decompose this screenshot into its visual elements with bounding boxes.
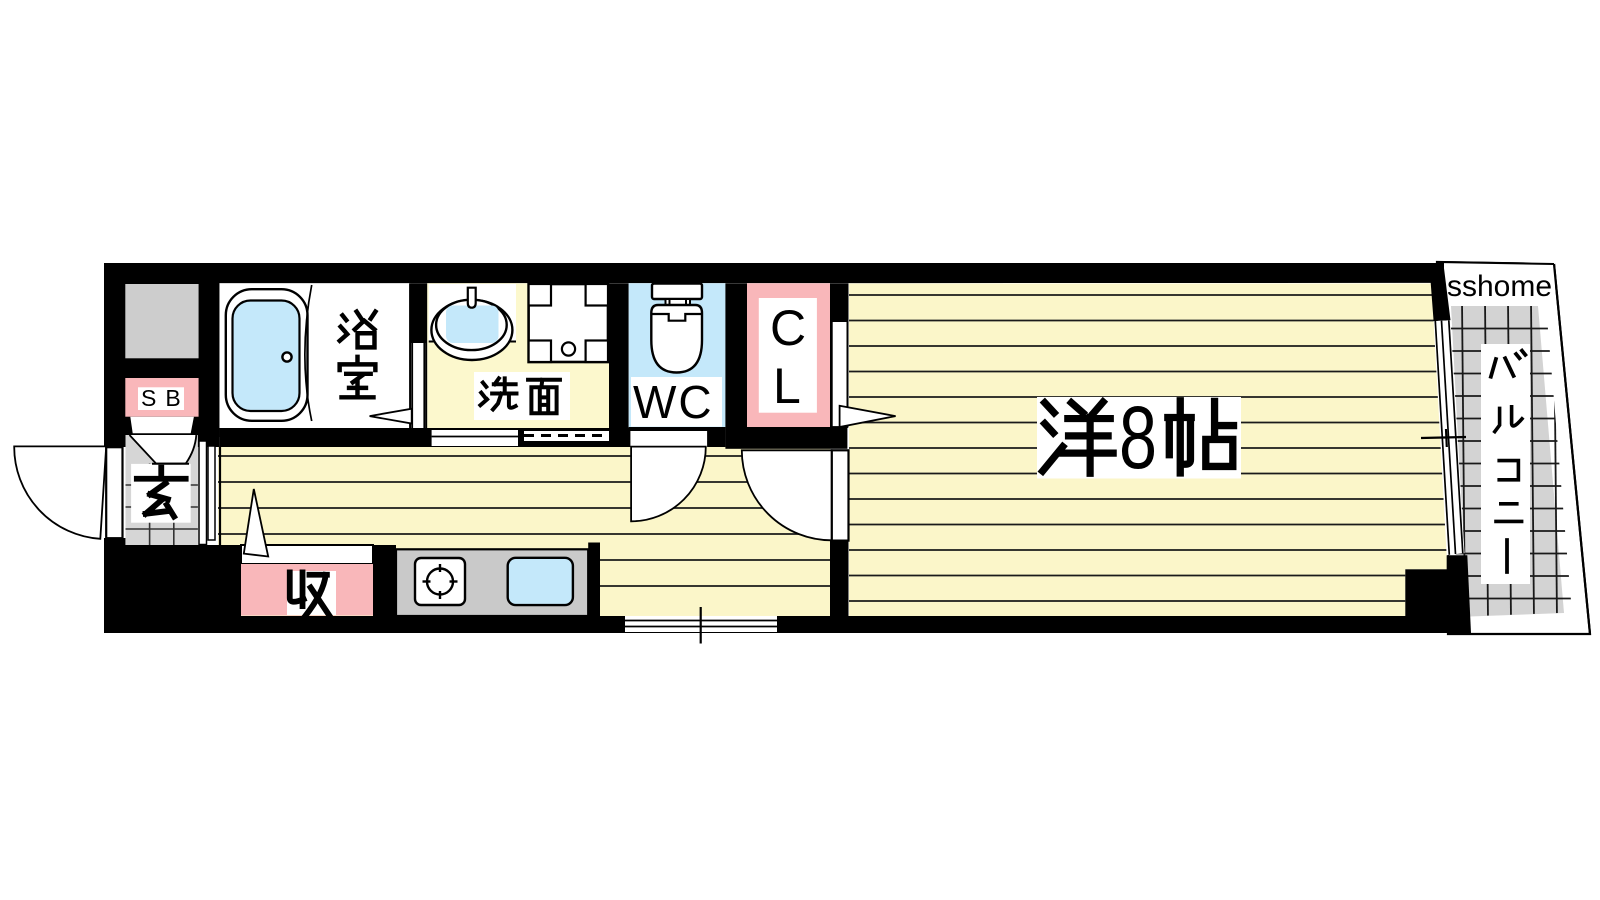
- svg-text:L: L: [773, 358, 801, 414]
- svg-text:C: C: [770, 300, 806, 356]
- svg-text:sshome: sshome: [1447, 270, 1552, 303]
- svg-text:SB: SB: [141, 385, 190, 411]
- svg-text:8: 8: [1119, 387, 1157, 487]
- svg-text:WC: WC: [633, 376, 714, 428]
